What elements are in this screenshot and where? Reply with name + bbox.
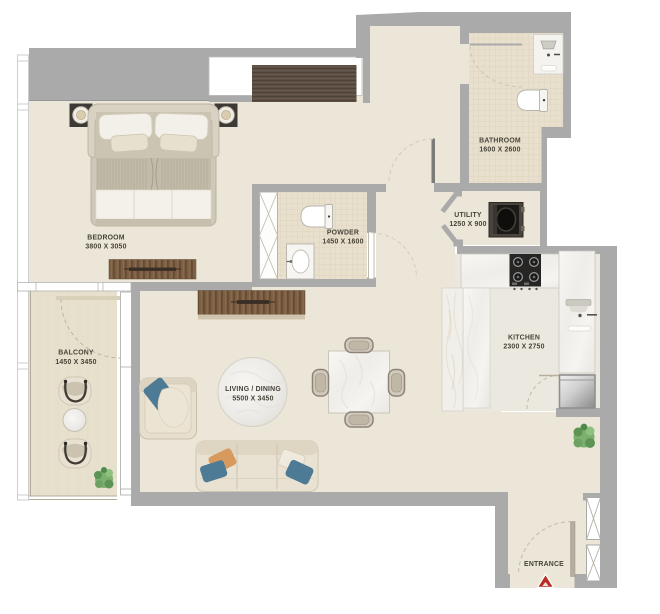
svg-text:BATHROOM: BATHROOM xyxy=(479,138,521,145)
svg-text:LIVING / DINING: LIVING / DINING xyxy=(225,386,281,393)
svg-text:1450 X 1600: 1450 X 1600 xyxy=(322,239,363,246)
svg-text:KITCHEN: KITCHEN xyxy=(508,335,540,342)
svg-text:1450 X 3450: 1450 X 3450 xyxy=(55,359,96,366)
svg-text:ENTRANCE: ENTRANCE xyxy=(524,561,564,568)
svg-text:5500 X 3450: 5500 X 3450 xyxy=(232,396,273,403)
svg-text:BEDROOM: BEDROOM xyxy=(87,235,124,242)
svg-text:BALCONY: BALCONY xyxy=(58,350,94,357)
svg-text:1600 X 2600: 1600 X 2600 xyxy=(479,147,520,154)
svg-text:UTILITY: UTILITY xyxy=(454,212,482,219)
svg-text:3800 X 3050: 3800 X 3050 xyxy=(85,244,126,251)
svg-text:POWDER: POWDER xyxy=(327,230,359,237)
svg-text:2300 X 2750: 2300 X 2750 xyxy=(503,344,544,351)
svg-text:1250 X 900: 1250 X 900 xyxy=(449,221,486,228)
